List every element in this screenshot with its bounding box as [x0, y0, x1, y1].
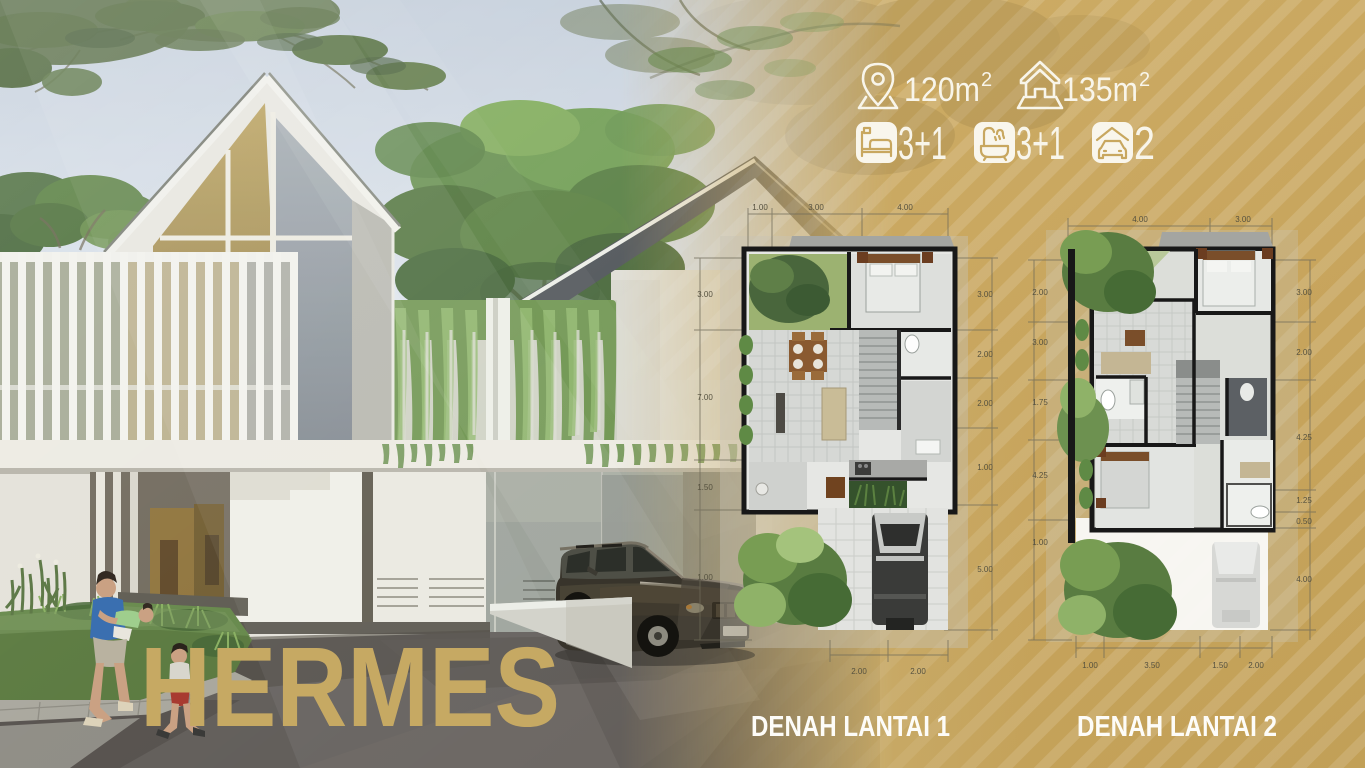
svg-text:1.00: 1.00 [697, 573, 713, 582]
svg-text:2.00: 2.00 [977, 350, 993, 359]
svg-text:1.25: 1.25 [1296, 496, 1312, 505]
svg-text:3+1: 3+1 [1016, 117, 1065, 169]
svg-text:120m: 120m [904, 71, 980, 109]
svg-text:1.50: 1.50 [1212, 661, 1228, 670]
svg-text:1.75: 1.75 [1032, 398, 1048, 407]
svg-text:7.00: 7.00 [697, 393, 713, 402]
svg-text:2.00: 2.00 [977, 399, 993, 408]
svg-text:0.50: 0.50 [1296, 517, 1312, 526]
svg-text:3+1: 3+1 [898, 117, 947, 169]
svg-text:2.00: 2.00 [1296, 348, 1312, 357]
svg-text:4.25: 4.25 [1296, 433, 1312, 442]
svg-text:2: 2 [981, 69, 992, 91]
svg-text:1.00: 1.00 [752, 203, 768, 212]
svg-text:2.00: 2.00 [1248, 661, 1264, 670]
svg-text:4.00: 4.00 [1132, 215, 1148, 224]
svg-text:1.00: 1.00 [977, 463, 993, 472]
svg-text:3.00: 3.00 [1032, 338, 1048, 347]
svg-text:3.00: 3.00 [1296, 288, 1312, 297]
svg-text:2.00: 2.00 [910, 667, 926, 676]
svg-text:HERMES: HERMES [140, 624, 560, 750]
svg-text:4.00: 4.00 [897, 203, 913, 212]
svg-text:3.50: 3.50 [1144, 661, 1160, 670]
svg-text:2.00: 2.00 [1032, 288, 1048, 297]
svg-text:135m: 135m [1062, 71, 1138, 109]
svg-text:3.00: 3.00 [808, 203, 824, 212]
svg-text:3.00: 3.00 [1235, 215, 1251, 224]
svg-text:1.00: 1.00 [1082, 661, 1098, 670]
svg-text:3.00: 3.00 [977, 290, 993, 299]
svg-text:DENAH LANTAI 2: DENAH LANTAI 2 [1077, 711, 1277, 743]
svg-text:4.25: 4.25 [1032, 471, 1048, 480]
svg-text:1.50: 1.50 [697, 483, 713, 492]
svg-text:1.00: 1.00 [1032, 538, 1048, 547]
svg-text:2.00: 2.00 [851, 667, 867, 676]
svg-text:DENAH LANTAI 1: DENAH LANTAI 1 [751, 711, 950, 743]
svg-text:5.00: 5.00 [977, 565, 993, 574]
svg-text:3.00: 3.00 [697, 290, 713, 299]
svg-text:2: 2 [1134, 117, 1155, 169]
svg-text:2: 2 [1139, 69, 1150, 91]
svg-text:4.00: 4.00 [1296, 575, 1312, 584]
